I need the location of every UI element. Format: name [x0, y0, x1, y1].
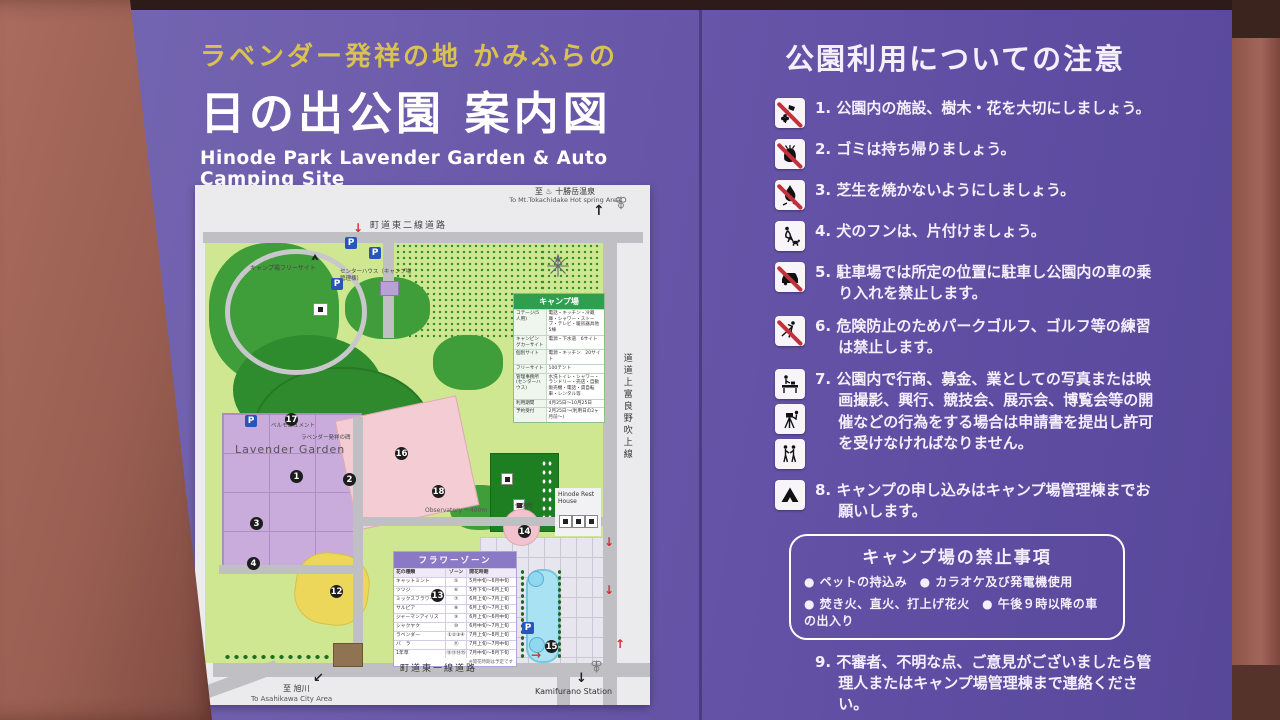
parking-icon: P	[345, 237, 357, 249]
flower-table-row: ジャーマンアイリス⑨6月上旬～6月中旬	[394, 613, 516, 622]
canal-trees-west	[520, 569, 526, 659]
rule-text: 4. 犬のフンは、片付けましょう。	[815, 221, 1155, 251]
camp-table-row: 管理事務所(センターハウス)水洗トイレ・シャワー・ランドリー・売店・自動販売機・…	[514, 373, 604, 399]
map-spot-1: 1	[290, 470, 303, 483]
map-spot-2: 2	[343, 473, 356, 486]
route-arrow-icon: ↓	[604, 583, 614, 597]
map-spot-16: 16	[395, 447, 408, 460]
camp-table-row: 利用期間4月25日～10月25日	[514, 399, 604, 408]
flower-table-row: サルビア⑧6月上旬～7月上旬	[394, 604, 516, 613]
flower-table-row: シャクヤク⑩6月中旬～7月上旬	[394, 622, 516, 631]
forest-center	[433, 335, 503, 390]
rest-area-label: 休憩所	[515, 503, 533, 510]
rule-item-7: 7. 公園内で行商、募金、業としての写真または映画撮影、興行、競技会、展示会、博…	[775, 369, 1155, 469]
board-seam	[699, 10, 702, 720]
camp-box-title: キャンプ場の禁止事項	[804, 543, 1110, 568]
rule-text: 9. 不審者、不明な点、ご意見がございましたら管理人またはキャンプ場管理棟まで連…	[815, 652, 1155, 716]
map-spot-13: 13	[431, 589, 444, 602]
map-spot-14: 14	[518, 525, 531, 538]
rule-icon-column	[775, 262, 805, 305]
down-arrow-icon: ↓	[576, 671, 587, 686]
rule-item-6: 6. 危険防止のためパークゴルフ、ゴルフ等の練習は禁止します。	[775, 316, 1155, 359]
route-arrow-icon: ↓	[353, 221, 363, 235]
flower-table-header: 花の種類ゾーン開花時期	[394, 568, 516, 577]
rules-list: 1. 公園内の施設、樹木・花を大切にしましょう。2. ゴミは持ち帰りましょう。3…	[775, 98, 1155, 523]
lavender-garden-label: Lavender Garden	[235, 443, 345, 456]
no-flower-picking-icon	[775, 98, 805, 128]
rule-icon-column	[775, 98, 805, 128]
rule-text: 8. キャンプの申し込みはキャンプ場管理棟までお願いします。	[815, 480, 1155, 523]
rule-item-4: 4. 犬のフンは、片付けましょう。	[775, 221, 1155, 251]
park-sign-photo: ラベンダー発祥の地 かみふらの 日の出公園 案内図 Hinode Park La…	[0, 0, 1280, 720]
rule-text: 2. ゴミは持ち帰りましょう。	[815, 139, 1155, 169]
road-south-label: 町道東一線道路	[400, 664, 477, 675]
flower-table-row: バ ラ⑪7月上旬～7月中旬	[394, 640, 516, 649]
map-spot-17: 17	[285, 413, 298, 426]
rule-item-3: 3. 芝生を焼かないようにしましょう。	[775, 180, 1155, 210]
sign-post-right	[1232, 0, 1280, 720]
camp-legend-table: キャンプ場 コテージ(5人用)電話・キッチン・冷蔵庫・シャワー・ストーブ・テレビ…	[513, 293, 605, 423]
shower-icon	[572, 515, 585, 528]
road-north	[203, 232, 643, 243]
tent-icon	[775, 480, 805, 510]
free-site-label: キャンプ場フリーサイト	[250, 265, 316, 272]
compass-icon	[545, 253, 571, 283]
rule-icon-column	[775, 316, 805, 359]
no-littering-icon	[775, 139, 805, 169]
center-house-label: センターハウス（キャンプ場管理棟）	[340, 269, 412, 282]
sign-frame-top	[0, 0, 1280, 10]
map-spot-3: 3	[250, 517, 263, 530]
dest-asahikawa-en: To Asahikawa City Area	[251, 695, 332, 703]
dest-asahikawa-ja: 至 旭川	[283, 684, 310, 694]
page-title: 日の出公園 案内図	[200, 77, 680, 142]
flower-table-row: ツツジ⑥5月下旬～6月上旬	[394, 586, 516, 595]
vendor-icon	[775, 369, 805, 399]
crossing-icon	[589, 659, 604, 678]
park-map: 至 ♨ 十勝岳温泉 To Mt.Tokachidake Hot spring A…	[195, 185, 650, 705]
rule-item-5: 5. 駐車場では所定の位置に駐車し公園内の車の乗り入れを禁止します。	[775, 262, 1155, 305]
camp-table-row: キャンピングカーサイト電源・下水道 6サイト	[514, 335, 604, 349]
southwest-arrow-icon: ↙	[313, 671, 324, 686]
no-fire-icon	[775, 180, 805, 210]
camp-table-row: フリーサイト100テント	[514, 364, 604, 373]
camp-table-title: キャンプ場	[514, 294, 604, 309]
rule-text: 6. 危険防止のためパークゴルフ、ゴルフ等の練習は禁止します。	[815, 316, 1155, 359]
utility-building	[333, 643, 363, 667]
no-golf-icon	[775, 316, 805, 346]
camp-box-line: ● 焚き火、直火、打上げ花火 ● 午後９時以降の車の出入り	[804, 595, 1110, 629]
rule-icon-column	[775, 139, 805, 169]
road-garden-east	[353, 417, 363, 663]
rest-house-label: Hinode Rest House	[558, 491, 600, 505]
dog-cleanup-icon	[775, 221, 805, 251]
up-arrow-icon: ↑	[593, 203, 605, 219]
no-cars-icon	[775, 262, 805, 292]
map-spot-12: 12	[330, 585, 343, 598]
observatory-label: Observatory ～400m	[425, 507, 487, 514]
wc-icon	[313, 303, 328, 316]
title-english: Hinode Park Lavender Garden & Auto Campi…	[200, 148, 680, 190]
flower-zone-table: フラワーゾーン 花の種類ゾーン開花時期キャットミント⑤5月中旬～6月中旬ツツジ⑥…	[393, 551, 517, 667]
rule-icon-column	[775, 180, 805, 210]
map-spot-15: 15	[545, 640, 558, 653]
rule-icon-column	[775, 480, 805, 523]
golf-pictogram	[501, 473, 513, 485]
rule-item-9: 9. 不審者、不明な点、ご意見がございましたら管理人またはキャンプ場管理棟まで連…	[775, 652, 1155, 716]
fountain-pond-top	[528, 571, 544, 587]
crossing-icon	[613, 195, 629, 215]
photographer-icon	[775, 404, 805, 434]
station-label: Kamifurano Station	[535, 687, 612, 697]
title-tagline: ラベンダー発祥の地 かみふらの	[200, 36, 680, 73]
road-east	[603, 232, 617, 705]
camp-table-row: 個別サイト電源・キッチン 20サイト	[514, 349, 604, 363]
rule-item-8: 8. キャンプの申し込みはキャンプ場管理棟までお願いします。	[775, 480, 1155, 523]
parking-icon: P	[331, 278, 343, 290]
flower-table-row: 1年草⑫⑬⑭⑮7月中旬～8月下旬	[394, 649, 516, 658]
rule-icon-column	[775, 369, 805, 469]
parking-icon: P	[245, 415, 257, 427]
event-people-icon	[775, 439, 805, 469]
origin-monument-label: ラベンダー発祥の碑	[301, 435, 351, 442]
rules-title: 公園利用についての注意	[785, 36, 1155, 78]
road-garden-south	[219, 565, 359, 574]
route-arrow-icon: →	[531, 648, 541, 662]
road-north-label: 町道東二線道路	[370, 221, 447, 232]
sign-title-block: ラベンダー発祥の地 かみふらの 日の出公園 案内図 Hinode Park La…	[200, 36, 680, 190]
rule-text: 3. 芝生を焼かないようにしましょう。	[815, 180, 1155, 210]
parking-icon: P	[522, 622, 534, 634]
golf-tee-dots	[541, 459, 553, 523]
route-arrow-icon: ↑	[615, 637, 625, 651]
route-arrow-icon: ↓	[604, 535, 614, 549]
map-spot-4: 4	[247, 557, 260, 570]
flower-table-row: ミックスフラワー⑦6月上旬～7月上旬	[394, 595, 516, 604]
parking-icon: P	[369, 247, 381, 259]
camp-table-row: コテージ(5人用)電話・キッチン・冷蔵庫・シャワー・ストーブ・テレビ・暖房器具他…	[514, 309, 604, 335]
rule-icon-column	[775, 221, 805, 251]
tent-icon	[309, 247, 321, 266]
rule-text: 5. 駐車場では所定の位置に駐車し公園内の車の乗り入れを禁止します。	[815, 262, 1155, 305]
camp-box-line: ● ペットの持込み ● カラオケ及び発電機使用	[804, 573, 1110, 590]
flower-table-title: フラワーゾーン	[394, 552, 516, 568]
rule-item-2: 2. ゴミは持ち帰りましょう。	[775, 139, 1155, 169]
rules-panel: 公園利用についての注意 1. 公園内の施設、樹木・花を大切にしましょう。2. ゴ…	[775, 36, 1155, 720]
flower-table-row: ラベンダー①②③④7月上旬～8月上旬	[394, 631, 516, 640]
camp-table-row: 予約受付2月25日～(利用日の2ヶ月前～)	[514, 407, 604, 421]
rule-text: 1. 公園内の施設、樹木・花を大切にしましょう。	[815, 98, 1155, 128]
restroom-icon	[559, 515, 572, 528]
center-house-building	[380, 281, 399, 296]
rule-item-1: 1. 公園内の施設、樹木・花を大切にしましょう。	[775, 98, 1155, 128]
road-east-label: 道道上富良野吹上線	[621, 353, 632, 461]
tent-site-icon	[585, 515, 598, 528]
sign-post-left	[0, 0, 220, 720]
camp-prohibition-box: キャンプ場の禁止事項 ● ペットの持込み ● カラオケ及び発電機使用 ● 焚き火…	[789, 534, 1125, 640]
flower-table-row: キャットミント⑤5月中旬～6月中旬	[394, 577, 516, 586]
rule-icon-column	[775, 652, 805, 716]
rule-text: 7. 公園内で行商、募金、業としての写真または映画撮影、興行、競技会、展示会、博…	[815, 369, 1155, 469]
map-spot-18: 18	[432, 485, 445, 498]
